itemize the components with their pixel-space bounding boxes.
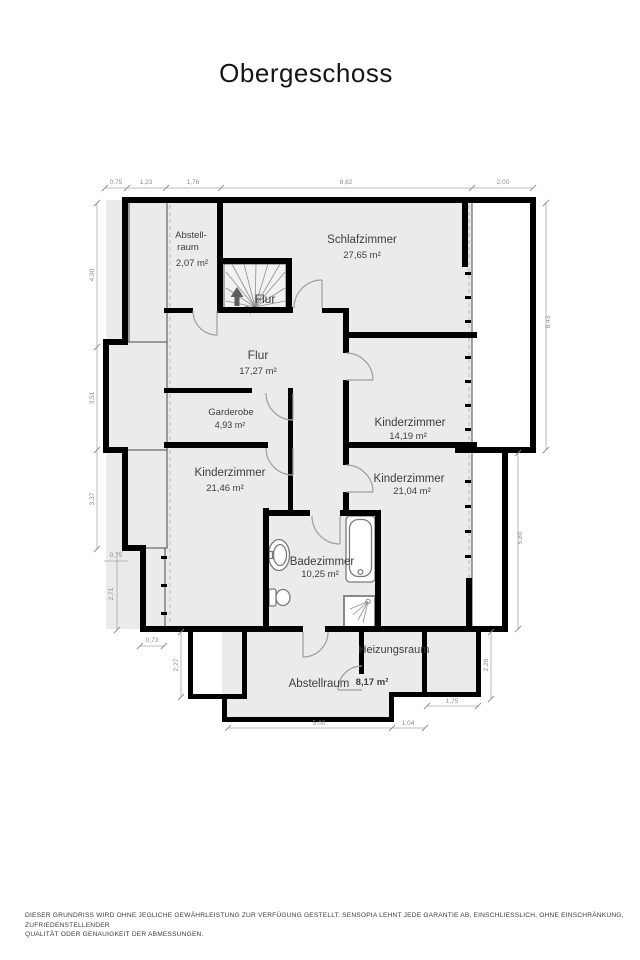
wall-segment bbox=[263, 510, 310, 516]
room-area-kinderzimmer-south: 21,04 m² bbox=[393, 486, 431, 497]
window-marker bbox=[465, 505, 471, 508]
dimension-top-1: 1,23 bbox=[140, 179, 153, 186]
room-area-kinderzimmer-west: 21,46 m² bbox=[206, 483, 244, 494]
window-marker bbox=[465, 356, 471, 359]
room-label-badezimmer: Badezimmer bbox=[290, 556, 355, 568]
wall-segment bbox=[288, 388, 293, 448]
wall-segment bbox=[476, 629, 481, 697]
dimension-right-2: 2,28 bbox=[483, 658, 490, 671]
disclaimer-line-1: DIESER GRUNDRISS WIRD OHNE JEGLICHE GEWÄ… bbox=[25, 911, 625, 930]
window-marker bbox=[465, 380, 471, 383]
window-marker bbox=[465, 296, 471, 299]
wall-segment bbox=[286, 258, 292, 313]
room-label-kinderzimmer-east: Kinderzimmer bbox=[375, 417, 446, 429]
sink-icon bbox=[269, 540, 290, 571]
room-label-kinderzimmer-west: Kinderzimmer bbox=[195, 467, 266, 479]
dimension-top-4: 2,00 bbox=[497, 179, 510, 186]
wall-segment bbox=[263, 508, 269, 630]
dimension-left-5: 0,73 bbox=[146, 637, 159, 644]
window-marker bbox=[465, 320, 471, 323]
dimension-left-0: 4,90 bbox=[89, 268, 96, 281]
hatch-right-lower bbox=[472, 450, 505, 629]
room-area-garderobe: 4,93 m² bbox=[215, 420, 246, 430]
wall-segment bbox=[217, 197, 223, 313]
dimension-left-2: 3,37 bbox=[89, 492, 96, 505]
wall-segment bbox=[502, 447, 508, 632]
room-area-abstellraum-top: 2,07 m² bbox=[176, 258, 208, 269]
room-label-schlafzimmer: Schlafzimmer bbox=[327, 234, 397, 246]
wall-segment bbox=[103, 339, 109, 453]
wall-segment bbox=[343, 492, 349, 513]
window-marker bbox=[161, 612, 167, 615]
shower-icon bbox=[344, 596, 375, 627]
wall-segment bbox=[389, 694, 394, 722]
dimension-left-6: 2,27 bbox=[173, 658, 180, 671]
room-area-flur: 17,27 m² bbox=[239, 366, 277, 377]
hatch-right-upper bbox=[472, 200, 533, 450]
wall-segment bbox=[140, 545, 146, 632]
wall-segment bbox=[188, 694, 247, 699]
window-marker bbox=[161, 556, 167, 559]
room-label-abstellraum-top-2: raum bbox=[177, 242, 199, 253]
wall-segment bbox=[217, 307, 293, 313]
room-area-kinderzimmer-east: 14,19 m² bbox=[389, 431, 427, 442]
dimension-top-2: 1,76 bbox=[187, 179, 200, 186]
dimension-right-0: 8,43 bbox=[545, 315, 552, 328]
window-marker bbox=[465, 404, 471, 407]
disclaimer-line-2: QUALITÄT ODER GENAUIGKEIT DER ABMESSUNGE… bbox=[25, 930, 625, 940]
dimension-bottom-1: 1,04 bbox=[402, 720, 415, 727]
wall-segment bbox=[288, 448, 293, 513]
bathtub-icon bbox=[346, 516, 375, 582]
wall-segment bbox=[343, 332, 477, 338]
wall-segment bbox=[140, 626, 303, 632]
wall-segment bbox=[340, 510, 381, 516]
wall-segment bbox=[466, 578, 472, 632]
window-marker bbox=[465, 555, 471, 558]
wall-segment bbox=[343, 448, 349, 465]
dimension-right-1: 5,80 bbox=[517, 531, 524, 544]
floor-plan-page: Obergeschoss bbox=[0, 0, 640, 960]
window-marker bbox=[465, 428, 471, 431]
dimension-top-0: 0,75 bbox=[110, 179, 123, 186]
disclaimer: DIESER GRUNDRISS WIRD OHNE JEGLICHE GEWÄ… bbox=[25, 911, 625, 940]
room-label-abstellraum-top-1: Abstell- bbox=[175, 230, 207, 241]
wall-segment bbox=[343, 380, 349, 448]
room-label-heizungsraum: Heizungsraum bbox=[359, 644, 430, 656]
room-area-badezimmer: 10,25 m² bbox=[301, 569, 339, 580]
room-label-flur: Flur bbox=[248, 348, 269, 362]
dimension-top-3: 8,82 bbox=[340, 179, 353, 186]
wall-segment bbox=[530, 197, 536, 453]
wall-segment bbox=[375, 510, 381, 630]
floor-plan: Flur 5,0 m² bbox=[0, 0, 640, 960]
page-title: Obergeschoss bbox=[0, 58, 612, 89]
wall-segment bbox=[164, 388, 252, 393]
stair-flur-label: Flur bbox=[255, 292, 276, 306]
dimension-left-3: 0,75 bbox=[110, 552, 123, 559]
wall-segment bbox=[343, 338, 349, 353]
room-label-kinderzimmer-south: Kinderzimmer bbox=[374, 473, 445, 485]
wall-segment bbox=[343, 442, 477, 448]
room-area-schlafzimmer: 27,65 m² bbox=[343, 250, 381, 261]
wall-segment bbox=[164, 442, 268, 448]
wall-segment bbox=[389, 692, 481, 697]
room-label-garderobe: Garderobe bbox=[208, 407, 253, 418]
window-marker bbox=[161, 584, 167, 587]
window-marker bbox=[465, 480, 471, 483]
wall-segment bbox=[422, 629, 427, 697]
wall-segment bbox=[164, 308, 193, 313]
room-area-heizungsraum: 8,17 m² bbox=[356, 677, 389, 688]
wall-segment bbox=[242, 629, 247, 699]
window-marker bbox=[465, 530, 471, 533]
toilet-icon bbox=[269, 589, 290, 606]
wall-segment bbox=[222, 717, 394, 722]
wall-segment bbox=[122, 197, 128, 345]
dimension-bottom-0: 5,00 bbox=[313, 720, 326, 727]
wall-segment bbox=[188, 629, 193, 699]
wall-segment bbox=[122, 447, 128, 551]
wall-segment bbox=[122, 197, 536, 203]
dimension-right-3: 1,75 bbox=[446, 698, 459, 705]
dimension-left-4: 2,71 bbox=[108, 587, 115, 600]
dimension-left-1: 3,51 bbox=[89, 391, 96, 404]
wall-segment bbox=[217, 258, 292, 264]
room-label-abstellraum-bottom: Abstellraum bbox=[289, 678, 350, 690]
window-marker bbox=[465, 272, 471, 275]
wall-segment bbox=[462, 197, 468, 267]
